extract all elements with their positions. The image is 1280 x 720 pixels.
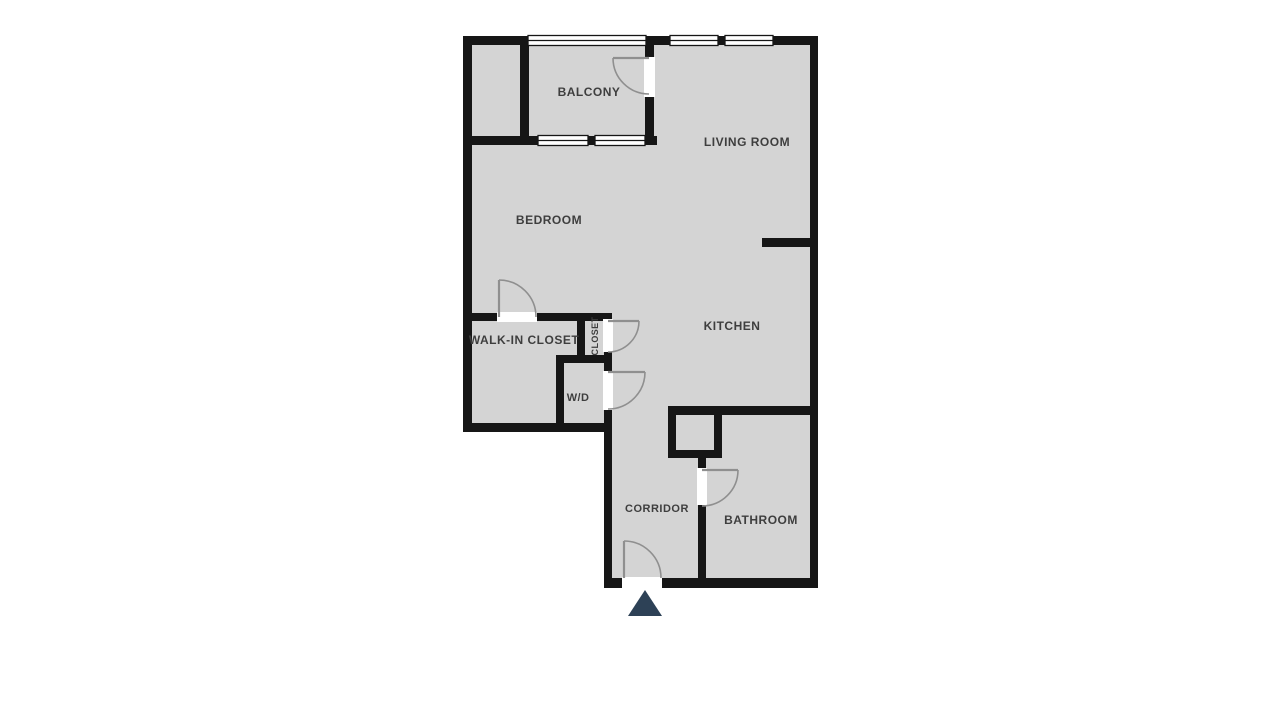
wall-nook-bottom (668, 450, 722, 458)
door-opening-entry (622, 577, 662, 588)
door-opening-balcony (644, 57, 655, 97)
wall-wd-top (556, 355, 612, 363)
room-label-corridor: CORRIDOR (625, 503, 689, 515)
wall-left (463, 36, 472, 432)
wall-balcony-divider (520, 36, 529, 145)
room-label-bedroom: BEDROOM (516, 213, 582, 227)
room-label-walk-in-closet: WALK-IN CLOSET (469, 333, 579, 347)
door-opening-closet (603, 319, 613, 352)
door-opening-bedroom (497, 312, 537, 322)
room-label-wd: W/D (567, 392, 590, 404)
wall-left-section-bottom (463, 423, 612, 432)
room-label-closet: CLOSET (590, 316, 600, 355)
door-opening-bathroom (697, 468, 707, 505)
floor-plan: BALCONY LIVING ROOM BEDROOM WALK-IN CLOS… (0, 0, 1280, 720)
room-label-balcony: BALCONY (558, 85, 621, 99)
wall-livingroom-kitchen-stub (762, 238, 818, 247)
entry-arrow-icon (628, 590, 662, 616)
floor-plan-canvas: BALCONY LIVING ROOM BEDROOM WALK-IN CLOS… (0, 0, 1280, 720)
room-label-living-room: LIVING ROOM (704, 135, 790, 149)
room-label-kitchen: KITCHEN (704, 319, 761, 333)
wall-right (810, 36, 818, 588)
wall-corridor-left (604, 423, 612, 588)
room-label-bathroom: BATHROOM (724, 513, 798, 527)
door-opening-wd (603, 371, 613, 410)
wall-kitchen-bathroom-divider (668, 406, 818, 415)
wall-wd-left (556, 355, 564, 432)
